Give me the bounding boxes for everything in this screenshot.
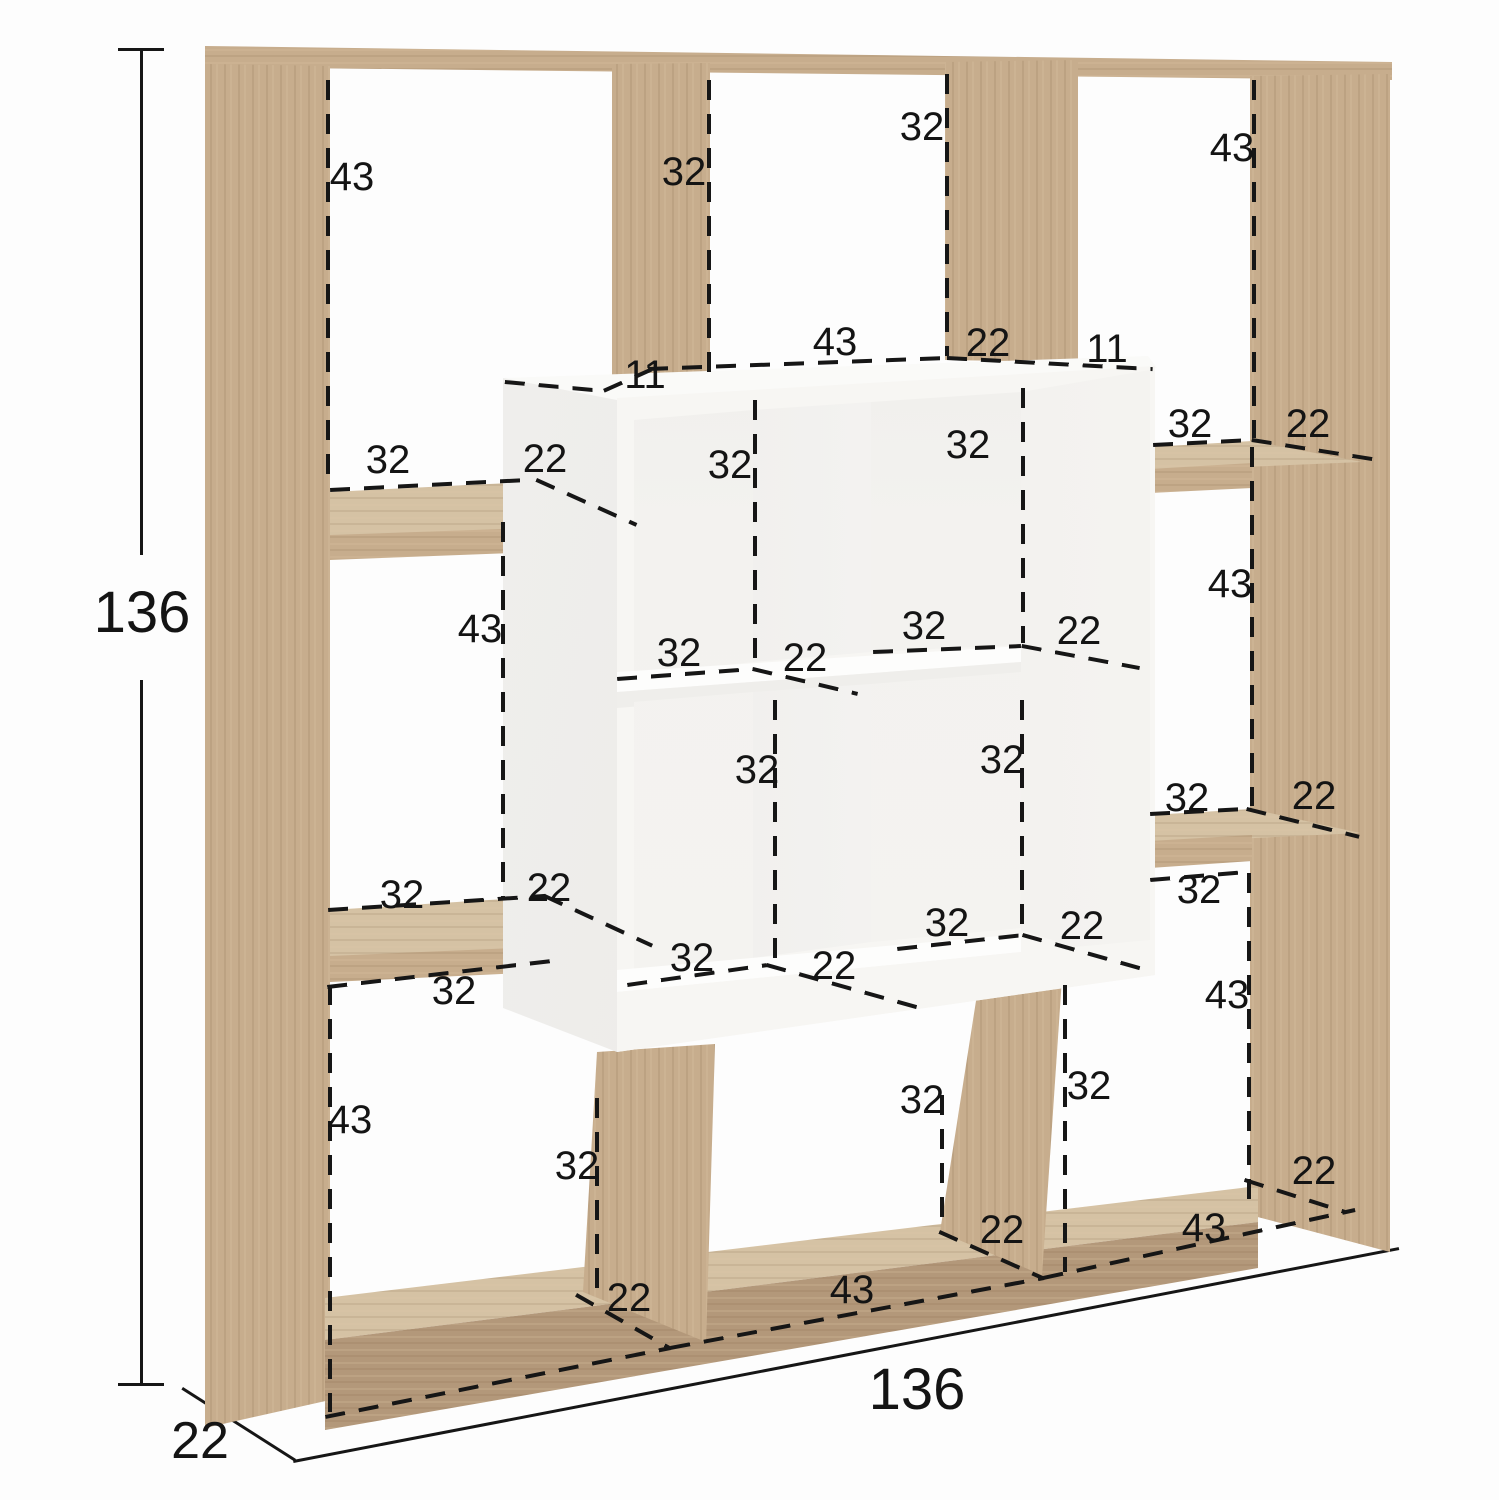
height-dimension-line-lower (140, 680, 143, 1385)
dim-label-overall-depth: 22 (171, 1415, 229, 1467)
dimension-label: 22 (527, 868, 572, 908)
dimension-label: 32 (380, 875, 425, 915)
dashed-line-cell-bl-32 (773, 700, 777, 958)
height-dimension-tick-bottom (118, 1383, 164, 1386)
dimension-label: 43 (1210, 128, 1255, 168)
dimension-label: 11 (624, 355, 666, 395)
dimension-label: 43 (458, 609, 503, 649)
dim-label-overall-width: 136 (869, 1361, 966, 1419)
dimension-label: 32 (366, 440, 411, 480)
dimension-label: 22 (1057, 611, 1102, 651)
dimension-label: 32 (662, 152, 707, 192)
dashed-line-mid-left-43 (501, 522, 505, 897)
dashed-line-bottom-right-divider-right-32 (1063, 985, 1067, 1272)
dashed-line-cell-br-32 (1020, 700, 1024, 930)
dimension-label: 32 (946, 425, 991, 465)
dim-label-overall-height: 136 (94, 584, 191, 642)
dashed-line-low-left-43 (328, 985, 332, 1412)
dimension-label: 22 (783, 638, 828, 678)
dashed-line-mid-right-43 (1250, 447, 1254, 806)
dimension-label: 43 (1182, 1208, 1227, 1248)
dashed-line-bottom-left-divider-32 (595, 1098, 599, 1288)
dimension-label: 32 (925, 903, 970, 943)
dimension-label: 32 (1165, 778, 1210, 818)
dimension-label: 43 (328, 1100, 373, 1140)
dimension-label: 22 (1292, 1151, 1337, 1191)
dimension-label: 32 (980, 740, 1025, 780)
dimension-label: 32 (735, 750, 780, 790)
dimension-label: 32 (1177, 870, 1222, 910)
dimension-label: 32 (657, 633, 702, 673)
dashed-line-low-right-43 (1247, 873, 1251, 1205)
dimension-label: 32 (432, 971, 477, 1011)
dimension-label: 43 (1205, 975, 1250, 1015)
dimension-label: 32 (900, 107, 945, 147)
dashed-line-cell-tl-32 (753, 400, 757, 662)
dimension-label: 11 (1086, 329, 1128, 369)
dimension-label: 43 (330, 157, 375, 197)
dimension-label: 22 (812, 946, 857, 986)
dimension-label: 32 (555, 1146, 600, 1186)
dimension-label: 32 (708, 445, 753, 485)
dimension-label: 43 (813, 322, 858, 362)
dimension-label: 43 (1208, 564, 1253, 604)
dimension-label: 32 (902, 606, 947, 646)
furniture-dimension-diagram: 1361362243323243432211113222323232224343… (0, 0, 1499, 1500)
dimension-label: 22 (523, 439, 568, 479)
dashed-line-top-divider-right-32 (945, 74, 949, 356)
height-dimension-line-upper (140, 50, 143, 555)
dimension-label: 22 (1060, 906, 1105, 946)
dimension-label: 22 (607, 1278, 652, 1318)
dimension-label: 32 (1168, 404, 1213, 444)
dashed-line-top-left-43 (326, 80, 330, 487)
dimension-label: 32 (670, 938, 715, 978)
dimension-label: 43 (830, 1270, 875, 1310)
height-dimension-tick-top (118, 48, 164, 51)
dimension-label: 22 (980, 1210, 1025, 1250)
dashed-line-cell-tr-32 (1021, 388, 1025, 643)
dimension-label: 22 (1286, 404, 1331, 444)
dimension-label: 32 (1067, 1066, 1112, 1106)
dimension-label: 32 (900, 1080, 945, 1120)
dimension-label: 22 (1292, 776, 1337, 816)
dimension-label: 22 (966, 323, 1011, 363)
dashed-line-top-divider-left-32 (707, 80, 711, 383)
